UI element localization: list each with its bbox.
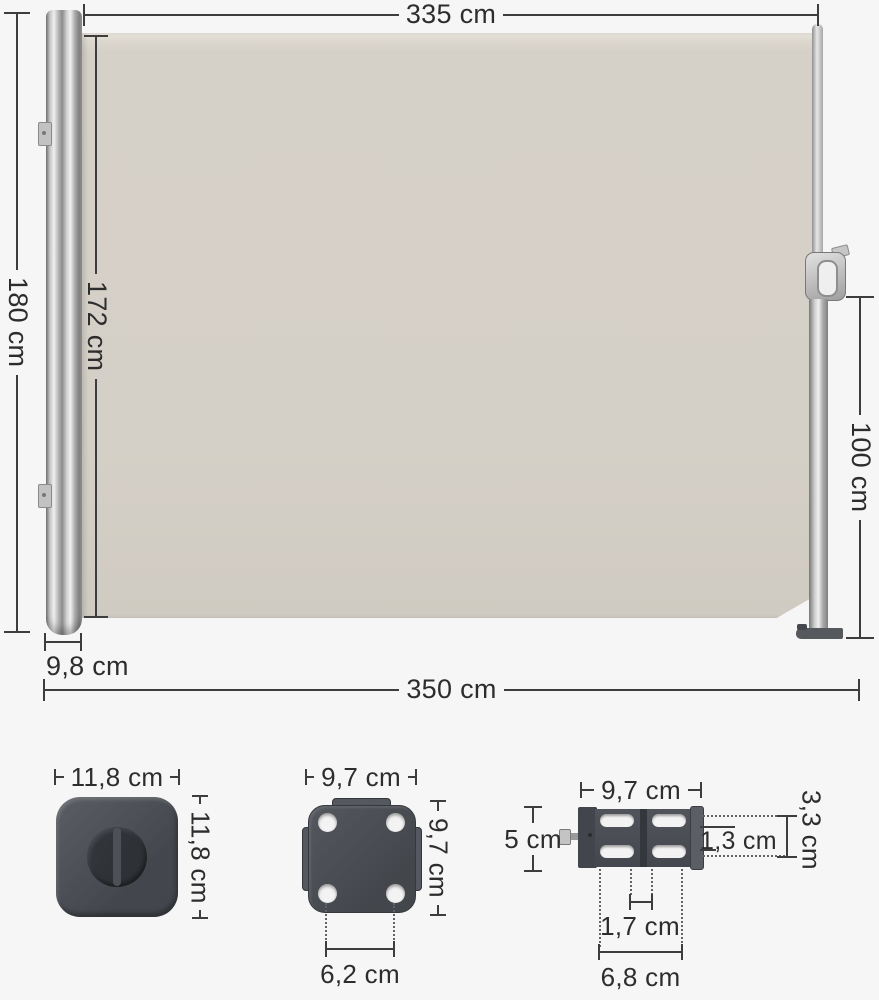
wall-plate-hole <box>318 884 337 903</box>
dim-line <box>437 905 439 914</box>
dim-front-pole-height: 100 cm <box>846 296 874 639</box>
dim-bracket-slot-gap <box>629 894 653 910</box>
dim-line <box>85 14 399 16</box>
dim-label-end-cap-width: 11,8 cm <box>64 763 171 792</box>
dim-fabric-width: 335 cm <box>83 4 819 26</box>
product-dimension-diagram: 335 cm 180 cm 172 cm 100 cm 9,8 cm 350 c… <box>0 0 879 1000</box>
dim-line <box>170 776 178 778</box>
extension-line <box>393 903 395 943</box>
dim-line <box>307 776 314 778</box>
dim-line <box>45 689 399 691</box>
dim-tick <box>178 769 180 785</box>
dim-label-bracket-slot-column: 3,3 cm <box>797 790 826 870</box>
bracket-slot <box>600 845 634 858</box>
front-pole <box>809 299 828 630</box>
dim-label-bracket-slot-height: 1,3 cm <box>700 828 777 856</box>
dim-line <box>46 641 80 643</box>
dim-tick <box>846 637 874 639</box>
dim-tick <box>430 914 446 916</box>
end-cap-knob-slot <box>113 828 121 886</box>
dim-line <box>859 298 861 415</box>
dim-line <box>600 951 681 953</box>
dim-line <box>95 37 97 274</box>
dim-line <box>408 776 415 778</box>
dim-label-end-cap-height: 11,8 cm <box>186 804 215 911</box>
cassette-pole <box>46 10 82 635</box>
dim-tick <box>415 769 417 785</box>
extension-line <box>630 869 632 895</box>
wall-clip-bottom <box>38 484 52 508</box>
dim-line <box>503 14 817 16</box>
end-cap-knob <box>87 827 147 887</box>
dim-bracket-width: 9,7 cm <box>580 782 702 798</box>
dim-line <box>532 855 534 870</box>
extension-line <box>651 869 653 895</box>
bracket-slot <box>652 814 686 827</box>
dim-label-fabric-width: 335 cm <box>399 0 503 30</box>
dim-tick <box>681 944 683 960</box>
dim-line <box>437 802 439 811</box>
pull-handle <box>805 252 846 301</box>
wall-clip-top <box>38 122 52 146</box>
dim-line <box>199 910 201 917</box>
dim-bracket-slot-span <box>598 944 683 960</box>
dim-tick <box>192 917 208 919</box>
dim-tick <box>84 616 108 618</box>
dim-line <box>532 808 534 823</box>
extension-line <box>700 815 785 817</box>
wall-plate-hole <box>386 884 405 903</box>
dim-label-wall-plate-hole-spacing: 6,2 cm <box>310 960 410 989</box>
dim-end-cap-width: 11,8 cm <box>54 769 180 785</box>
dim-line <box>16 375 18 631</box>
dim-line <box>582 789 594 791</box>
dim-tick <box>700 782 702 798</box>
dim-label-total-height: 180 cm <box>2 270 32 374</box>
dim-line <box>504 689 858 691</box>
dim-wall-plate-height: 9,7 cm <box>430 800 446 916</box>
dim-line <box>859 520 861 637</box>
pole-foot <box>796 628 843 639</box>
extension-line <box>325 903 327 943</box>
dim-label-bracket-slot-gap: 1,7 cm <box>598 912 682 941</box>
dim-line <box>56 776 64 778</box>
dim-label-bracket-width: 9,7 cm <box>594 776 688 805</box>
dim-line <box>199 797 201 804</box>
dim-end-cap-height: 11,8 cm <box>192 795 208 919</box>
dim-line <box>327 948 393 950</box>
dim-wall-plate-hole-spacing <box>325 941 395 957</box>
awning-fabric <box>82 33 813 618</box>
dim-fabric-height: 172 cm <box>84 35 108 618</box>
bracket-slot <box>600 814 634 827</box>
bracket-slot <box>652 845 686 858</box>
dim-label-fabric-height: 172 cm <box>81 274 111 378</box>
dim-cassette-depth <box>44 633 82 651</box>
wall-plate-hole <box>318 813 337 832</box>
dim-tick <box>4 631 30 633</box>
dim-tick <box>524 870 542 872</box>
dim-label-total-width: 350 cm <box>399 675 503 705</box>
dim-label-bracket-slot-span: 6,8 cm <box>591 963 690 992</box>
dim-total-height: 180 cm <box>4 12 30 633</box>
dim-line <box>631 901 651 903</box>
dim-tick <box>651 894 653 910</box>
dim-bracket-height: 5 cm <box>524 806 542 872</box>
dim-tick <box>858 679 860 701</box>
dim-label-cassette-depth: 9,8 cm <box>46 652 129 682</box>
dim-line <box>95 379 97 616</box>
wall-plate-hole <box>386 813 405 832</box>
dim-line <box>688 789 700 791</box>
dim-label-wall-plate-height: 9,7 cm <box>424 811 453 905</box>
dim-tick <box>393 941 395 957</box>
dim-line <box>700 849 716 851</box>
dim-tick <box>817 4 819 26</box>
dim-tick <box>80 633 82 651</box>
handle-hole <box>817 260 838 297</box>
dim-line <box>16 14 18 270</box>
dim-wall-plate-width: 9,7 cm <box>305 769 417 785</box>
dim-label-wall-plate-width: 9,7 cm <box>314 763 408 792</box>
dim-label-front-pole-height: 100 cm <box>845 415 875 519</box>
bracket-divider <box>640 809 647 867</box>
dim-label-bracket-height: 5 cm <box>504 823 562 856</box>
dim-line <box>786 817 788 856</box>
dim-label-slot-column-wrap: 3,3 cm <box>793 790 829 884</box>
front-bar <box>812 24 823 254</box>
dim-total-width: 350 cm <box>43 679 860 701</box>
